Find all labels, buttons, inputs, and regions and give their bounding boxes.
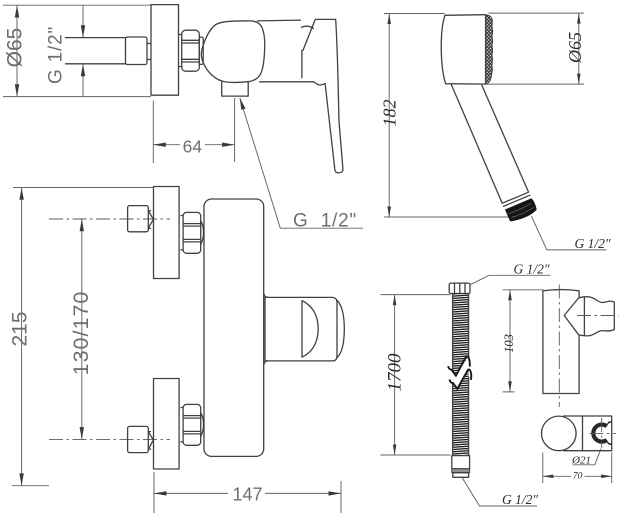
svg-text:215: 215 xyxy=(9,311,32,346)
svg-text:G 1/2": G 1/2" xyxy=(574,236,610,251)
svg-text:G 1/2": G 1/2" xyxy=(513,262,549,277)
svg-text:G 1/2": G 1/2" xyxy=(502,492,538,507)
svg-text:Ø21: Ø21 xyxy=(571,454,591,466)
svg-text:130/170: 130/170 xyxy=(69,291,93,376)
svg-text:G 1/2": G 1/2" xyxy=(46,26,67,84)
svg-text:1700: 1700 xyxy=(385,353,406,392)
svg-text:G 1/2": G 1/2" xyxy=(293,210,357,231)
svg-text:64: 64 xyxy=(183,136,203,156)
svg-text:70: 70 xyxy=(573,472,583,482)
svg-text:Ø65: Ø65 xyxy=(565,32,585,64)
svg-text:182: 182 xyxy=(380,100,400,127)
svg-text:Ø65: Ø65 xyxy=(4,28,27,68)
svg-text:147: 147 xyxy=(232,484,262,504)
svg-text:103: 103 xyxy=(502,334,516,353)
